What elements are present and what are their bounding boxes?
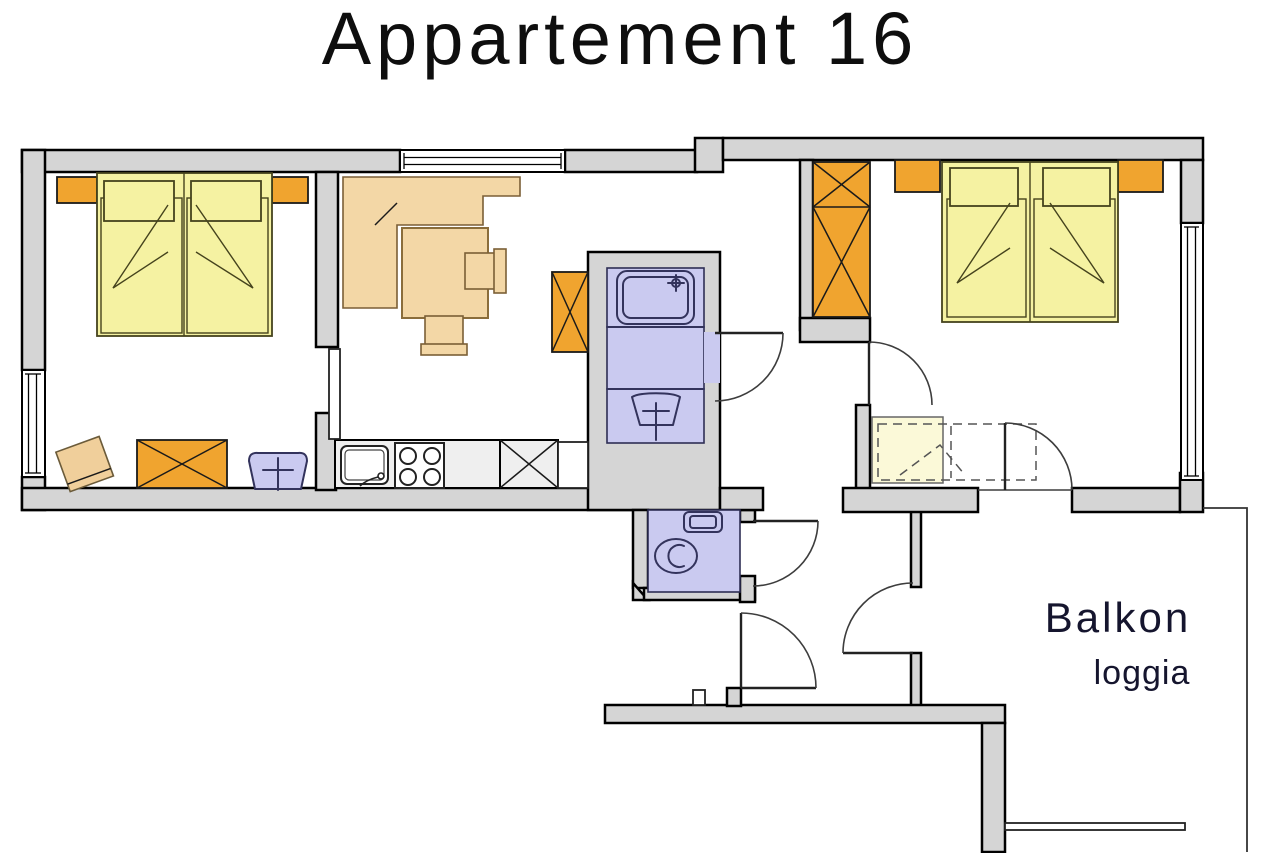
window-right — [1181, 223, 1203, 480]
wc-room — [648, 510, 740, 592]
wall-vestibule-right-upper — [911, 510, 921, 587]
chair-icon — [421, 316, 467, 355]
window-top — [400, 150, 565, 172]
wall-balcony-column — [982, 723, 1005, 852]
door-bedroom2 — [869, 342, 932, 405]
wall-bottom-left — [22, 488, 633, 510]
wall-bedroom2-niche — [800, 160, 813, 330]
stove-icon — [395, 443, 444, 488]
folding-bed-icon — [872, 417, 1036, 483]
cabinet-x-icon — [552, 272, 588, 352]
wall-bedroom2-left — [856, 405, 870, 490]
double-bed-icon — [942, 162, 1118, 322]
wall-bedroom2-bottom-a — [843, 488, 978, 512]
kitchen-cabinet-x-icon — [500, 440, 558, 488]
balcony: Balkon loggia — [693, 508, 1247, 852]
dresser-x-icon — [137, 440, 227, 488]
wall-left-upper — [22, 150, 45, 370]
vestibule-nub — [693, 690, 705, 705]
floor-plan-page: Appartement 16 — [0, 0, 1280, 853]
kitchen-niche — [558, 442, 588, 488]
kitchen — [335, 440, 588, 488]
window-left — [22, 370, 45, 477]
bedroom-1 — [56, 173, 340, 492]
wall-vestibule-right-lower — [911, 653, 921, 707]
bathroom — [607, 268, 720, 443]
wall-top-mid — [565, 150, 697, 172]
wardrobe-icon — [813, 162, 870, 317]
balcony-outline — [1203, 508, 1247, 852]
nightstand-icon — [1118, 160, 1163, 192]
wall-hall-bottom-stub — [720, 488, 763, 510]
wall-bedroom2-stub — [800, 318, 870, 342]
wall-door-jamb-nub — [727, 688, 741, 706]
door-vestibule-right — [843, 583, 913, 653]
wall-bedroom2-bottom-b — [1072, 488, 1180, 512]
door-wc — [753, 521, 818, 586]
nightstand-icon — [895, 160, 940, 192]
door-leaf-bedroom1 — [329, 349, 340, 439]
chair-icon — [56, 436, 114, 491]
loggia-label: loggia — [1094, 654, 1191, 692]
wall-bedroom1-living — [316, 172, 338, 347]
double-bed-icon — [97, 173, 272, 336]
washbasin-icon — [249, 453, 307, 490]
balcony-label: Balkon — [1045, 594, 1191, 641]
living-room — [343, 177, 588, 355]
wc-floor — [648, 510, 740, 592]
door-vestibule-left — [741, 613, 816, 688]
nightstand-icon — [272, 177, 308, 203]
wall-wc-right-bottom — [740, 576, 755, 602]
wall-wc-right-top — [740, 510, 755, 522]
nightstand-icon — [57, 177, 97, 203]
page-title: Appartement 16 — [322, 0, 919, 80]
wall-top-left — [22, 150, 400, 172]
kitchen-sink-icon — [341, 446, 388, 486]
wall-top-step — [695, 138, 723, 172]
wall-top-right — [723, 138, 1203, 160]
chair-icon — [465, 249, 506, 293]
wall-right-upper — [1181, 160, 1203, 223]
wall-vestibule-bottom-band — [605, 705, 1005, 723]
bathroom-door-floor — [704, 332, 720, 383]
balcony-railing-icon — [1005, 823, 1185, 830]
wall-wc-left — [633, 510, 648, 588]
door-bathroom — [715, 333, 783, 401]
